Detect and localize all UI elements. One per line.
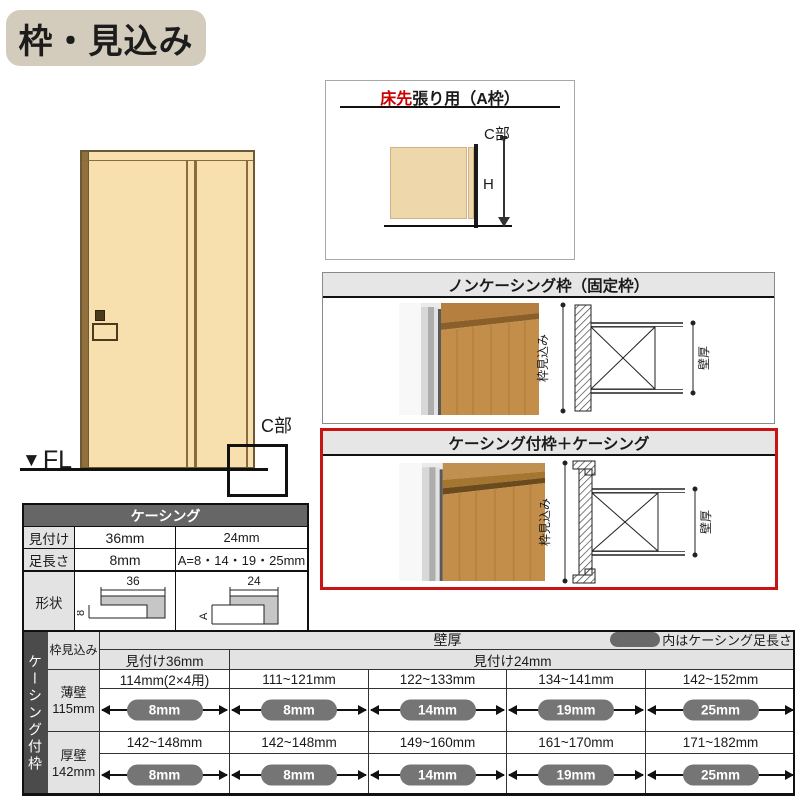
span-arrow-cell: 14mm: [369, 754, 507, 796]
range-cell: 171~182mm: [646, 732, 795, 754]
wall-thickness-label: 壁厚: [696, 346, 711, 370]
legend: 内はケーシング足長さ: [610, 630, 792, 649]
range-cell: 161~170mm: [507, 732, 646, 754]
door-panel-line: [186, 160, 188, 467]
table-row: 形状 36 8 24: [24, 571, 307, 632]
arrow-right-icon: [358, 705, 367, 715]
table-row: 見付け 36mm 24mm: [24, 527, 307, 549]
wall-thickness-label: 壁厚: [698, 510, 713, 534]
range-cell: 134~141mm: [507, 670, 646, 689]
noncasing-panel: ノンケーシング枠（固定枠）: [322, 272, 775, 424]
range-cell: 149~160mm: [369, 732, 507, 754]
arrow-left-icon: [647, 705, 656, 715]
corner-header: 枠見込み: [48, 630, 100, 670]
fl-label: FL: [43, 446, 72, 475]
span-arrow-cell: 19mm: [507, 689, 646, 732]
range-cell: 114mm(2×4用): [100, 670, 230, 689]
door-frame-photo: [399, 463, 545, 581]
shape-36-diagram: 36 8: [75, 572, 176, 632]
page: 枠・見込み ▼ FL C部 床先張り用（A枠） C部 H ノンケーシング枠（固定…: [0, 0, 800, 800]
arrow-right-icon: [635, 705, 644, 715]
leg-length-pill: 14mm: [400, 700, 476, 721]
arrow-left-icon: [370, 770, 379, 780]
frame-depth-label: 枠見込み: [538, 498, 552, 546]
casing-section-diagram: 枠見込み 壁厚: [537, 459, 757, 585]
span-arrow-cell: 25mm: [646, 754, 795, 796]
c-part-label: C部: [484, 123, 510, 144]
page-title: 枠・見込み: [6, 10, 206, 66]
c-part-label: C部: [261, 412, 292, 438]
wall-type: 薄壁: [60, 685, 86, 701]
arrow-left-icon: [101, 705, 110, 715]
arrow-right-icon: [635, 770, 644, 780]
leg-length-pill: 8mm: [261, 700, 337, 721]
floor-level-marker: ▼ FL: [22, 446, 72, 475]
row-header-thick-wall: 厚壁 142mm: [48, 732, 100, 796]
door-handle: [92, 323, 118, 341]
ashinagasa-24-value: A=8・14・19・25mm: [176, 549, 307, 570]
frame-depth-label: 枠見込み: [536, 334, 550, 382]
legend-pill-icon: [610, 632, 660, 647]
a-frame-panel: 床先張り用（A枠） C部 H: [325, 80, 575, 260]
row-header-mitsuke: 見付け: [24, 527, 75, 548]
span-arrow-cell: 8mm: [100, 754, 230, 796]
header-mitsuke-24: 見付け24mm: [230, 650, 795, 670]
span-arrow-cell: 8mm: [230, 754, 369, 796]
leg-length-pill: 25mm: [683, 700, 759, 721]
wall-thickness-header: 壁厚 内はケーシング足長さ: [100, 630, 795, 650]
leg-length-pill: 8mm: [261, 765, 337, 786]
wall-type: 厚壁: [60, 748, 86, 764]
shape36-width-dim: 36: [126, 574, 140, 588]
noncasing-section-diagram: 枠見込み 壁厚: [535, 299, 755, 419]
door-lock: [95, 310, 105, 321]
legend-label: 内はケーシング足長さ: [662, 630, 792, 649]
leg-length-pill: 8mm: [127, 700, 203, 721]
door-panel-line: [194, 160, 197, 467]
wall-size: 142mm: [52, 764, 95, 780]
arrow-left-icon: [508, 705, 517, 715]
mitsuke-36-value: 36mm: [75, 527, 176, 548]
header-mitsuke-36: 見付け36mm: [100, 650, 230, 670]
arrow-right-icon: [496, 770, 505, 780]
span-arrow-cell: 8mm: [100, 689, 230, 732]
arrow-right-icon: [358, 770, 367, 780]
span-arrow-cell: 19mm: [507, 754, 646, 796]
arrow-left-icon: [370, 705, 379, 715]
wall-thickness-table: ケーシング付枠 枠見込み 壁厚 内はケーシング足長さ 見付け36mm 見付け24…: [22, 630, 795, 796]
arrow-right-icon: [219, 705, 228, 715]
shape-24-diagram: 24 A: [176, 572, 307, 632]
door-frame-photo: [399, 303, 539, 415]
wall-header-label: 壁厚: [434, 632, 462, 648]
noncasing-panel-title: ノンケーシング枠（固定枠）: [323, 273, 774, 298]
title-underline: [340, 106, 560, 108]
arrow-left-icon: [231, 770, 240, 780]
height-dimension-line: [503, 138, 505, 226]
range-cell: 142~152mm: [646, 670, 795, 689]
row-header-keijo: 形状: [24, 572, 75, 632]
span-arrow-cell: 25mm: [646, 689, 795, 732]
span-arrow-cell: 8mm: [230, 689, 369, 732]
casing-panel-title: ケーシング付枠＋ケーシング: [323, 431, 775, 456]
arrow-left-icon: [101, 770, 110, 780]
arrow-left-icon: [508, 770, 517, 780]
leg-length-pill: 19mm: [538, 765, 614, 786]
a-frame-baseline: [384, 225, 512, 227]
arrow-right-icon: [496, 705, 505, 715]
range-cell: 122~133mm: [369, 670, 507, 689]
range-cell: 111~121mm: [230, 670, 369, 689]
leg-length-pill: 25mm: [683, 765, 759, 786]
arrow-left-icon: [231, 705, 240, 715]
arrow-left-icon: [647, 770, 656, 780]
door-left-stile: [82, 152, 89, 467]
shape24-width-dim: 24: [247, 574, 261, 588]
leg-length-pill: 19mm: [538, 700, 614, 721]
c-part-callout-rect: [227, 444, 288, 497]
ashinagasa-36-value: 8mm: [75, 549, 176, 570]
casing-panel: ケーシング付枠＋ケーシング: [320, 428, 778, 590]
row-header-ashinagasa: 足長さ: [24, 549, 75, 570]
shape36-leg-dim: 8: [77, 610, 87, 616]
casing-spec-table-title: ケーシング: [24, 505, 307, 527]
leg-length-pill: 8mm: [127, 765, 203, 786]
arrow-down-icon: [498, 217, 510, 227]
a-frame-door-section: [390, 147, 467, 219]
table-side-label: ケーシング付枠: [22, 630, 48, 796]
leg-length-pill: 14mm: [400, 765, 476, 786]
arrow-right-icon: [785, 770, 794, 780]
door-top-rail: [82, 152, 253, 161]
height-label: H: [483, 176, 494, 193]
arrow-right-icon: [219, 770, 228, 780]
range-cell: 142~148mm: [230, 732, 369, 754]
row-header-thin-wall: 薄壁 115mm: [48, 670, 100, 732]
a-frame-frame-line: [474, 144, 478, 228]
wall-size: 115mm: [52, 701, 94, 717]
span-arrow-cell: 14mm: [369, 689, 507, 732]
mitsuke-24-value: 24mm: [176, 527, 307, 548]
table-row: 足長さ 8mm A=8・14・19・25mm: [24, 549, 307, 571]
down-triangle-icon: ▼: [22, 450, 41, 472]
door-illustration: [80, 150, 255, 469]
door-panel-line: [246, 160, 248, 467]
range-cell: 142~148mm: [100, 732, 230, 754]
shape24-leg-dim: A: [198, 612, 210, 620]
casing-spec-table: ケーシング 見付け 36mm 24mm 足長さ 8mm A=8・14・19・25…: [22, 503, 309, 634]
arrow-right-icon: [785, 705, 794, 715]
